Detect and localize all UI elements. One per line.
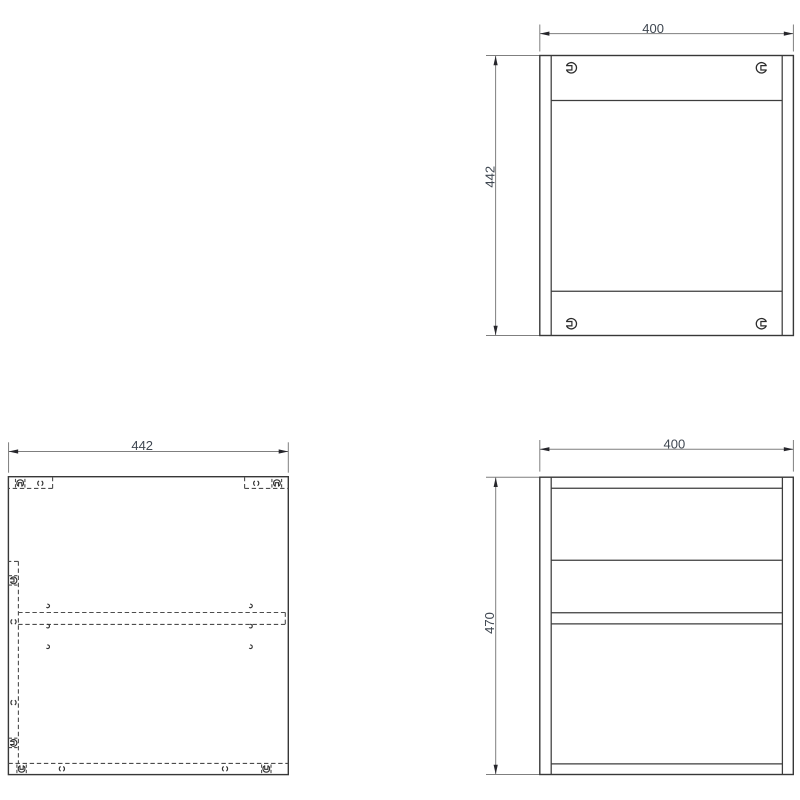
svg-text:400: 400 xyxy=(664,436,686,451)
svg-text:442: 442 xyxy=(483,166,498,188)
svg-text:400: 400 xyxy=(642,21,664,36)
svg-text:470: 470 xyxy=(482,612,497,634)
svg-text:442: 442 xyxy=(131,438,153,453)
